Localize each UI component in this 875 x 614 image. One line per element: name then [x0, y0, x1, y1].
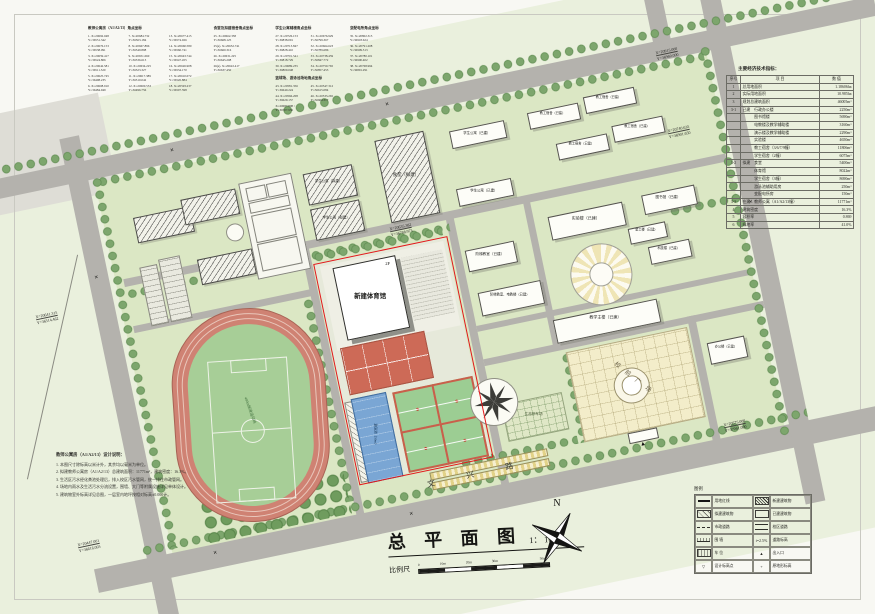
indicator-row: 教工宿舍（3/6/7/9幢） 11806m² [727, 145, 854, 153]
building-label: 实验楼（已建） [559, 216, 613, 221]
indicator-row: 3-3 在建 教师公寓（A1/A2/13幢） 11771m² [727, 198, 854, 206]
indicator-no [727, 122, 741, 130]
indicator-row: 3-2 拟建 食堂 5400m² [727, 160, 854, 168]
scale-tick: 10m [440, 562, 446, 566]
scale-tick: 20m [466, 560, 472, 564]
coord-item: 38. X=20768.994 Y=36891.291 [350, 64, 390, 72]
coord-item: 37. X=20780.101 Y=36900.402 [350, 54, 390, 62]
indicator-row: 4 建筑密度 16.3% [727, 206, 854, 214]
coord-item: 5. X=20625.745 Y=36498.235 [88, 74, 124, 82]
indicator-no: 5 [727, 214, 741, 222]
indicator-no: 6 [727, 221, 741, 229]
indicator-row: 图书馆楼 5690m² [727, 114, 854, 122]
tech-building [648, 239, 693, 265]
north-label: N [524, 498, 590, 509]
coord-item: 1. X=20692.048 Y=36551.342 [88, 34, 124, 42]
indicator-name: 电教楼及教学辅助楼 [741, 122, 820, 130]
building-label: 阶梯教室（已建） [467, 252, 513, 256]
coord-item: 30. X=20689.235 Y=36809.048 [275, 64, 305, 72]
design-notes: 教师公寓房（A1/A2/13）设计说明： 1. 本图尺寸除标高以米计外，其余均以… [56, 452, 254, 498]
coord-item: 28. X=20713.847 Y=36828.410 [275, 44, 305, 52]
coord-item: 2. X=20676.153 Y=36538.091 [88, 44, 124, 52]
coord-item: 33. X=20738.459 Y=36847.772 [311, 54, 341, 62]
north-compass-icon [528, 509, 586, 567]
building-label: 教工宿舍（已建） [529, 112, 577, 116]
building-label: 图书馆（已建） [644, 195, 692, 199]
coord-item: 35. X=20802.315 Y=36918.624 [350, 34, 390, 42]
building-label: 学生公寓（拟建） [313, 215, 359, 219]
scale-tick: 0 [418, 563, 420, 567]
indicator-value: 8690m² [820, 175, 854, 183]
legend-label: 已建建筑物 [770, 508, 811, 521]
coord-item: 36. X=20791.208 Y=36909.513 [350, 44, 390, 52]
coord-group-2: 食堂及拟建宿舍角点坐标 25. X=20662.358 Y=36668.1252… [214, 26, 267, 134]
lecture-ele-building [478, 280, 546, 317]
indicator-value: 11806m² [820, 145, 854, 153]
coord-item: 17. X=20610.072 Y=36520.884 [169, 74, 205, 82]
indicator-value: 0.869 [820, 214, 854, 222]
red-line-icon [695, 495, 712, 508]
legend-label: 新建建筑物 [770, 495, 811, 508]
building-label: 科技楼（已建） [650, 247, 688, 251]
building-label: 教工宿舍（已建） [584, 96, 632, 100]
coord-item: 29. X=20701.541 Y=36818.729 [275, 54, 305, 62]
legend-label: 设计标高点 [712, 560, 753, 573]
coord-item: 25. X=20662.358 Y=36668.125 [214, 34, 267, 42]
legend-title: 图例 [694, 486, 812, 492]
col-header: 项 目 [741, 76, 820, 84]
coord-item: 15. X=20643.744 Y=36547.455 [169, 54, 205, 62]
indicator-row: 学生宿舍（3幢） 8690m² [727, 175, 854, 183]
coord-items: 43. X=20581.356 Y=36640.22444. X=20566.2… [275, 84, 341, 104]
coord-item: 44. X=20566.208 Y=36629.157 [275, 94, 305, 102]
road-elevation-icon: i=2.5% [753, 534, 770, 547]
coord-item: 9. X=20651.060 Y=36536.613 [129, 54, 165, 62]
coord-items: 25. X=20662.358 Y=36668.12525(a). X=2065… [214, 34, 267, 73]
coord-group-4: 变配电所角点坐标 35. X=20802.315 Y=36918.62436. … [350, 26, 390, 134]
indicator-name: 实际用地面积 [741, 91, 820, 99]
gym-floors-label: 2F [382, 261, 394, 267]
indicator-no [727, 191, 741, 199]
coord-item: 26. X=20631.225 Y=36645.208 [214, 54, 267, 62]
radial-plaza-center [587, 260, 615, 288]
indicator-name: 容积率 [741, 214, 820, 222]
existing-building-icon [753, 508, 770, 521]
indicator-value: 250m² [820, 183, 854, 191]
coord-items: 1. X=20692.048 Y=36551.3422. X=20676.153… [88, 34, 205, 95]
indicator-no: 2 [727, 91, 741, 99]
scale-bar-label: 比例尺 [389, 564, 410, 575]
indicator-no: 3-3 [727, 198, 741, 206]
coord-item: 18. X=20593.237 Y=36507.598 [169, 84, 205, 92]
staff-dorm [527, 103, 581, 130]
wall-icon [695, 534, 712, 547]
coord-item: 32. X=20664.623 Y=36789.686 [311, 44, 341, 52]
notes-lines: 1. 本图尺寸除标高以米计外，其余均以毫米为单位。2. 拟建教师公寓房（A1/A… [56, 461, 254, 499]
indicator-name: 图书馆楼 [741, 114, 820, 122]
legend-grid: 用地红线 新建建筑物 拟建建筑物 已建建筑物 市政道路 校区道路 围 墙 i=2… [694, 494, 812, 574]
indicator-no [727, 183, 741, 191]
coord-group-header: 变配电所角点坐标 [350, 26, 390, 31]
indicator-name: 教工宿舍（3/6/7/9幢） [741, 145, 820, 153]
indicator-value: 8022m² [820, 168, 854, 176]
original-elevation-icon: + [753, 560, 770, 573]
parking-icon [695, 547, 712, 560]
coord-item: 31. X=20676.929 Y=36799.367 [311, 34, 341, 42]
indicator-row: 5 容积率 0.869 [727, 214, 854, 222]
legend-label: 车 位 [712, 547, 753, 560]
eco-parking-label: 生态停车场 [508, 412, 560, 416]
coord-item: 16. X=20626.908 Y=36534.170 [169, 64, 205, 72]
building-label: 阶梯教室、电教楼（已建） [480, 294, 540, 298]
planned-building-icon [695, 508, 712, 521]
indicator-row: 游泳池辅助用房 250m² [727, 183, 854, 191]
indicator-value: 3160m² [820, 122, 854, 130]
indicator-name: 拟建 食堂 [741, 160, 820, 168]
coord-group-header: 教师公寓房（A1/A2/13）角点坐标 [88, 26, 205, 31]
coord-group-3: 学生公寓辅楼角点坐标 27. X=20726.153 Y=36838.09128… [275, 26, 341, 134]
pool-label: 游泳池（50m） [373, 418, 377, 452]
indicator-value: 1.18606ha [820, 83, 854, 91]
new-building-icon [753, 495, 770, 508]
coord-items: 35. X=20802.315 Y=36918.62436. X=20791.2… [350, 34, 390, 73]
staff-dorm [556, 133, 610, 160]
drawing-sheet: 学生公寓（拟建） 学生公寓（拟建） 食堂（拟建） 学生公寓（已建） 学生公寓（已… [0, 0, 875, 614]
indicator-no [727, 175, 741, 183]
coord-item: 46. X=20533.265 Y=36604.317 [311, 94, 341, 102]
lecture-hall [465, 241, 518, 273]
entrance-icon: ▲ [753, 547, 770, 560]
indicator-row: 2 实际用地面积 10.985ha [727, 91, 854, 99]
indicator-no [727, 145, 741, 153]
small-plaza [224, 222, 245, 243]
legend-label: 围 墙 [712, 534, 753, 547]
indicator-no [727, 129, 741, 137]
building-label: 学生公寓（拟建） [306, 179, 352, 183]
building-label: 学生公寓（已建） [458, 189, 510, 193]
coord-group-header: 学生公寓辅楼角点坐标 [275, 26, 341, 31]
indicator-value: 41.0% [820, 221, 854, 229]
coord-subgroup-header: 篮球场、游泳池场地角点坐标 [275, 76, 341, 81]
north-arrow: N [524, 498, 590, 572]
survey-mark-icon: ✕ [169, 147, 174, 154]
indicator-name: 演示楼及教学辅助楼 [741, 129, 820, 137]
planned-dorm [303, 164, 358, 206]
note-line: 3. 生活区污水经化粪池处理后，排入校区污水管网，统一排往市政管网。 [56, 476, 254, 484]
indicator-name: 绿地率 [741, 221, 820, 229]
indicator-row: 实验楼 4650m² [727, 137, 854, 145]
note-line: 1. 本图尺寸除标高以米计外，其余均以毫米为单位。 [56, 461, 254, 469]
indicator-value: 150m² [820, 191, 854, 199]
legend-label: 市政道路 [712, 521, 753, 534]
city-road-icon [695, 521, 712, 534]
indicator-name: 学生宿舍（3幢） [741, 175, 820, 183]
indicator-value: 4650m² [820, 137, 854, 145]
coord-item: 10. X=20634.225 Y=36523.327 [129, 64, 165, 72]
legend-label: 用地红线 [712, 495, 753, 508]
coord-item: 12. X=20600.553 Y=36496.756 [129, 84, 165, 92]
indicator-no [727, 152, 741, 160]
coord-item: 3. X=20659.417 Y=36524.806 [88, 54, 124, 62]
building-label: 食堂（拟建） [384, 172, 428, 177]
indicator-row: 体育馆 8022m² [727, 168, 854, 176]
indicator-value: 16.3% [820, 206, 854, 214]
indicator-row: 学生宿舍（2幢） 6075m² [727, 152, 854, 160]
coord-item: 43. X=20581.356 Y=36640.224 [275, 84, 305, 92]
coord-item: 6. X=20608.910 Y=36484.949 [88, 84, 124, 92]
indicators-table: 序号 项 目 数 值 1 总用地面积 1.18606ha 2 实际用地面积 10… [726, 75, 854, 229]
planned-building [197, 248, 257, 285]
coord-footnote: X=20687.808 / Y=36707.956 [275, 104, 341, 112]
coord-item: 8. X=20667.896 Y=36549.898 [129, 44, 165, 52]
note-line: 2. 拟建教师公寓房（A1/A2/13）总建筑面积：11771m²，建筑密度：1… [56, 468, 254, 476]
indicator-value: 10.985ha [820, 91, 854, 99]
planned-building [180, 188, 240, 225]
coord-item: 13. X=20677.415 Y=36574.026 [169, 34, 205, 42]
building-label: 教工宿舍（已建） [557, 143, 605, 147]
entrance-arrow-icon: ▲ [639, 441, 646, 448]
gymnasium-label: 新建体育馆 [344, 293, 396, 301]
coord-item: 25(a). X=20652.741 Y=36660.316 [214, 44, 267, 52]
coord-item: 4. X=20642.581 Y=36511.520 [88, 64, 124, 72]
indicator-value: 2290m² [820, 129, 854, 137]
indicator-no: 4 [727, 206, 741, 214]
coord-item: 45. X=20547.312 Y=36615.084 [311, 84, 341, 92]
indicator-no: 1 [727, 83, 741, 91]
indicator-value: 6075m² [820, 152, 854, 160]
staff-dorm [611, 116, 665, 143]
building-label: 教工宿舍（已建） [613, 125, 661, 129]
indicator-no [727, 137, 741, 145]
design-elevation-icon: ▽ [695, 560, 712, 573]
legend-label: 校区道路 [770, 521, 811, 534]
corner-coordinate-lists: 教师公寓房（A1/A2/13）角点坐标 1. X=20692.048 Y=365… [88, 26, 390, 134]
col-header: 数 值 [820, 76, 854, 84]
coord-item: 11. X=20617.389 Y=36510.042 [129, 74, 165, 82]
indicator-name: 建筑密度 [741, 206, 820, 214]
notes-header: 教师公寓房（A1/A2/13）设计说明： [56, 452, 254, 458]
indicator-name: 游泳池辅助用房 [741, 183, 820, 191]
scale-tick: 30m [492, 559, 498, 563]
indicator-no: 3 [727, 99, 741, 107]
indicator-no: 3-1 [727, 106, 741, 114]
indicator-name: 总用地面积 [741, 83, 820, 91]
coord-group-header: 食堂及拟建宿舍角点坐标 [214, 26, 267, 31]
coord-group-1: 教师公寓房（A1/A2/13）角点坐标 1. X=20692.048 Y=365… [88, 26, 205, 134]
coord-item: 7. X=20684.732 Y=36563.184 [129, 34, 165, 42]
coord-item: 26(a). X=20622.417 Y=36637.450 [214, 64, 267, 72]
building-label: 办公楼（已建） [709, 345, 743, 349]
indicator-row: 3 规划总建筑面积 46005m² [727, 99, 854, 107]
indicator-value: 2250m² [820, 106, 854, 114]
building-label: 学生公寓（已建） [451, 131, 503, 135]
note-line: 5. 建筑物室外标高详见总图，一层室内地坪按相对标高±0.000计。 [56, 491, 254, 499]
legend: 图例 用地红线 新建建筑物 拟建建筑物 已建建筑物 市政道路 校区道路 围 墙 … [694, 486, 812, 574]
indicator-name: 实验楼 [741, 137, 820, 145]
building-label: 教学主楼（已建） [573, 315, 637, 320]
coord-item: 34. X=20750.765 Y=36857.453 [311, 64, 341, 72]
col-header: 序号 [727, 76, 741, 84]
indicator-name: 体育馆 [741, 168, 820, 176]
indicator-row: 3-1 已建 行政办公楼 2250m² [727, 106, 854, 114]
coord-item: 14. X=20660.580 Y=36560.741 [169, 44, 205, 52]
indicator-row: 1 总用地面积 1.18606ha [727, 83, 854, 91]
indicator-row: 电教楼及教学辅助楼 3160m² [727, 122, 854, 130]
metal-shop [628, 221, 668, 244]
legend-label: 原地形标高 [770, 560, 811, 573]
building-label: 金工楼（已建） [629, 228, 663, 232]
indicator-row: 演示楼及教学辅助楼 2290m² [727, 129, 854, 137]
indicators-title: 主要经济技术指标： [738, 66, 779, 72]
indicator-name: 在建 教师公寓（A1/A2/13幢） [741, 198, 820, 206]
office-building [707, 336, 749, 365]
indicator-no [727, 114, 741, 122]
coord-items: 27. X=20726.153 Y=36838.09128. X=20713.8… [275, 34, 341, 75]
indicator-row: 变配电所房 150m² [727, 191, 854, 199]
coord-item: 27. X=20726.153 Y=36838.091 [275, 34, 305, 42]
indicator-name: 已建 行政办公楼 [741, 106, 820, 114]
drawing-title: 总 平 面 图 [387, 522, 523, 555]
indicator-value: 5400m² [820, 160, 854, 168]
note-line: 4. 场地内雨水及生活污水分流设置，围墙、大门等附属设施详见单体设计。 [56, 483, 254, 491]
indicator-name: 变配电所房 [741, 191, 820, 199]
indicator-name: 规划总建筑面积 [741, 99, 820, 107]
indicator-name: 学生宿舍（2幢） [741, 152, 820, 160]
staff-dorm [583, 87, 637, 114]
campus-road-icon [753, 521, 770, 534]
indicator-value: 11771m² [820, 198, 854, 206]
legend-label: 出入口 [770, 547, 811, 560]
indicator-no [727, 168, 741, 176]
indicator-no: 3-2 [727, 160, 741, 168]
indicator-value: 46005m² [820, 99, 854, 107]
indicator-row: 6 绿地率 41.0% [727, 221, 854, 229]
legend-label: 道路标高 [770, 534, 811, 547]
survey-mark-icon: ✕ [409, 511, 414, 518]
legend-label: 拟建建筑物 [712, 508, 753, 521]
indicator-value: 5690m² [820, 114, 854, 122]
